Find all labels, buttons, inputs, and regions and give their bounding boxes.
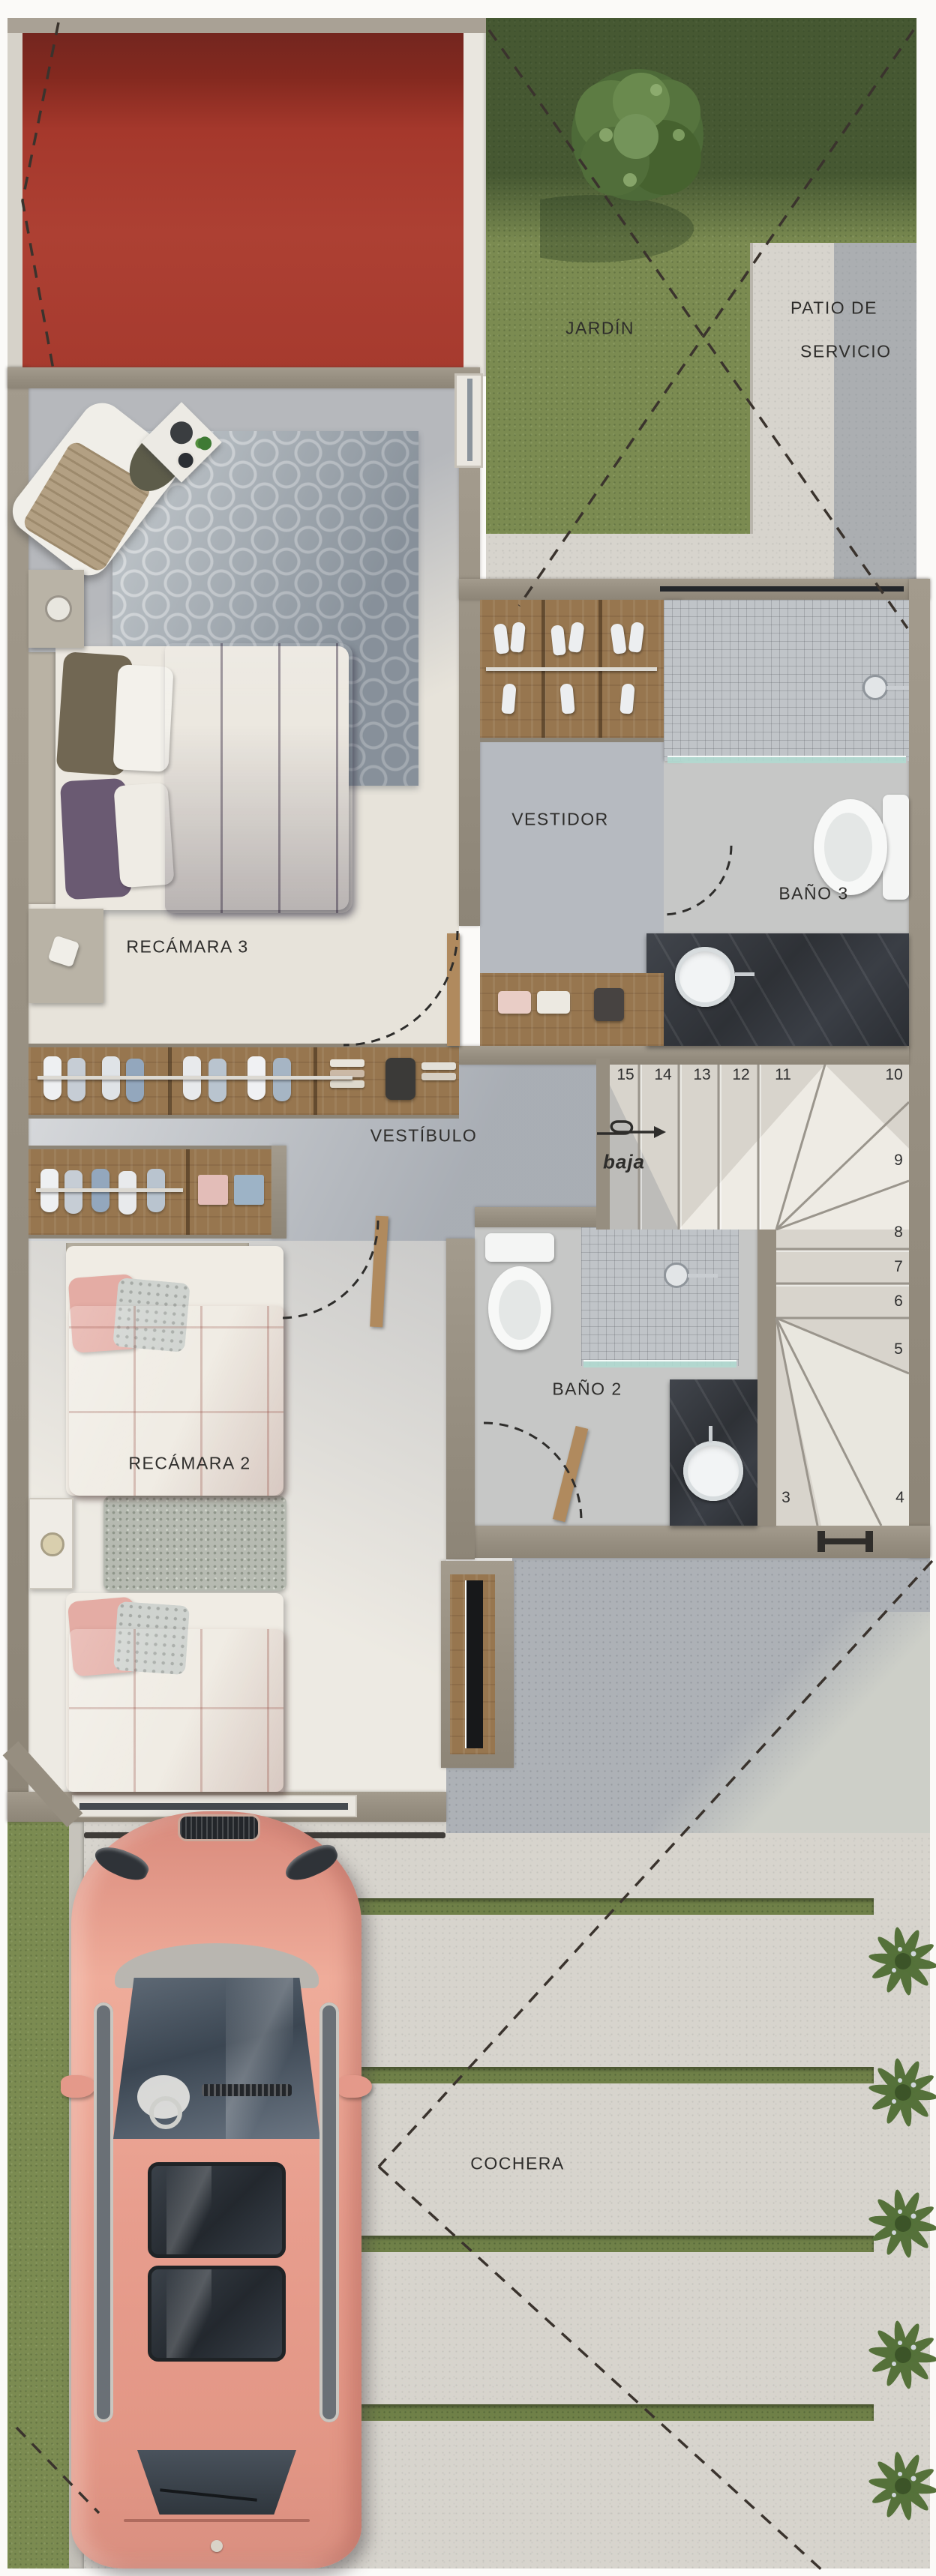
bedroom3-label: RECÁMARA 3	[126, 937, 248, 957]
shoe	[568, 622, 584, 653]
hanging-clothes	[64, 1170, 82, 1214]
vanity-bath3	[646, 933, 909, 1046]
nightstand-deco	[48, 936, 80, 968]
towel-stack	[498, 991, 531, 1014]
car-windshield	[113, 1978, 320, 2139]
toilet-tank	[485, 1233, 554, 1262]
car-side-window	[319, 2002, 339, 2422]
bath2-label: BAÑO 2	[552, 1379, 622, 1400]
stair-number: 8	[894, 1224, 903, 1242]
faucet-bath3	[735, 972, 754, 976]
wall-bedroom3-east	[459, 465, 480, 926]
shoe-shelf	[480, 600, 664, 742]
side-table-plant	[195, 434, 214, 453]
car-steering-wheel	[149, 2096, 182, 2129]
bed-double-purple	[28, 646, 349, 910]
folded-clothes	[330, 1059, 364, 1067]
bedroom3-door-leaf	[447, 933, 460, 1046]
stair-number: 13	[693, 1066, 710, 1084]
wall-bedroom2-east	[446, 1239, 475, 1559]
service-patio-label-line1: PATIO DE	[790, 298, 877, 318]
vanity-kit	[594, 988, 624, 1021]
hanging-clothes	[67, 1058, 85, 1101]
car-mirror	[61, 2075, 95, 2098]
back-patio-sunlight	[652, 1612, 930, 1833]
folded-towel	[421, 1062, 456, 1070]
car-dashboard-vent	[202, 2084, 292, 2096]
walkin-closet-label: VESTIDOR	[511, 810, 609, 830]
toilet-seat	[499, 1280, 541, 1340]
closet-bedroom3	[28, 1044, 459, 1119]
roof-top-wall	[7, 18, 486, 33]
roof-edge	[463, 18, 486, 376]
stairs-direction-label: baja	[603, 1151, 645, 1174]
shoe	[510, 622, 526, 653]
garden-label: JARDÍN	[565, 319, 634, 339]
garden-shade	[486, 18, 916, 243]
car-sunroof-rear	[148, 2266, 286, 2362]
back-door	[817, 1531, 873, 1552]
bath3-label: BAÑO 3	[778, 884, 848, 904]
garage-label: COCHERA	[470, 2154, 565, 2174]
bed-single-2	[66, 1593, 285, 1792]
side-table-plate	[166, 417, 197, 448]
nightstand	[28, 909, 103, 1003]
tv-screen	[466, 1580, 483, 1748]
rug-shaggy	[103, 1496, 286, 1591]
hanging-clothes	[118, 1171, 136, 1215]
folded-clothes	[330, 1080, 364, 1088]
car-windshield-glint	[226, 1978, 293, 2139]
shoe	[550, 625, 566, 656]
tv-niche	[441, 1561, 514, 1768]
closet-bag	[385, 1058, 415, 1100]
service-patio-edge	[750, 243, 753, 534]
car-rear-window	[137, 2450, 296, 2515]
floor-plan-scene: JARDÍN PATIO DE SERVICIO COCHERA	[0, 0, 936, 2576]
closet-rod	[37, 1076, 352, 1080]
stair-number: 14	[654, 1066, 671, 1084]
hall-label: VESTÍBULO	[370, 1126, 478, 1146]
lamp-icon	[40, 1532, 64, 1556]
car	[71, 1811, 361, 2569]
car-mirror	[337, 2075, 372, 2098]
shoe	[628, 622, 645, 653]
lamp-icon	[45, 595, 72, 622]
car-sunroof-front	[148, 2162, 286, 2258]
bed-duvet-pink	[69, 1629, 283, 1792]
shower3-glass-door	[660, 586, 904, 592]
stairs	[596, 1059, 911, 1528]
car-badge	[211, 2540, 223, 2552]
shoe	[559, 683, 574, 714]
service-patio-label: PATIO DE SERVICIO	[776, 298, 891, 363]
left-grass-strip	[7, 1822, 69, 2569]
stair-number: 3	[781, 1489, 790, 1507]
red-roof	[22, 18, 463, 376]
basin-bath3	[675, 947, 735, 1007]
back-door-panel	[817, 1538, 873, 1544]
closet-counter	[480, 973, 664, 1046]
hanging-clothes	[208, 1059, 226, 1102]
nightstand	[28, 570, 84, 648]
shoe	[619, 683, 634, 714]
closet-divider	[168, 1047, 172, 1115]
stair-number: 9	[894, 1152, 903, 1170]
stair-number: 15	[616, 1066, 634, 1084]
nightstand	[28, 1498, 73, 1589]
stair-number: 11	[775, 1066, 791, 1084]
bedroom3-window	[454, 373, 483, 468]
wall-top-bedroom3	[7, 367, 480, 388]
bed-headboard	[28, 652, 57, 904]
shelf-rail	[486, 667, 657, 671]
shower-arm	[886, 686, 909, 690]
car-trunk-line	[124, 2519, 310, 2522]
shoe	[610, 623, 626, 654]
folded-towel	[421, 1073, 456, 1080]
bedroom3-window-glass	[467, 379, 472, 461]
bedroom2-window-glass	[79, 1803, 348, 1810]
car-sunroof-glint	[166, 2166, 211, 2254]
wall-right	[909, 579, 930, 1558]
shoe	[493, 623, 510, 654]
hanging-clothes	[273, 1058, 291, 1101]
toilet-seat	[824, 813, 872, 882]
closet-rod	[36, 1188, 183, 1192]
car-grille	[178, 1814, 260, 1841]
closet-divider	[313, 1047, 317, 1115]
shower3-glass-shelf	[667, 756, 906, 763]
shower-head-icon	[862, 675, 888, 700]
stair-number: 12	[732, 1066, 749, 1084]
stair-number: 6	[894, 1292, 903, 1310]
towel-stack	[537, 991, 570, 1014]
car-sunroof-glint	[166, 2269, 211, 2358]
closet-bedroom2	[28, 1146, 271, 1239]
hanging-clothes	[126, 1059, 144, 1102]
folded-shirt-pink	[198, 1175, 228, 1205]
bedroom2-label: RECÁMARA 2	[128, 1454, 250, 1474]
closet-divider	[186, 1149, 190, 1235]
shoe	[501, 683, 516, 714]
bed-duvet-purple	[165, 643, 352, 913]
stair-number: 10	[885, 1066, 902, 1084]
stair-number: 5	[894, 1340, 903, 1358]
wall-hall-stub	[271, 1146, 286, 1239]
service-patio-label-line2: SERVICIO	[800, 342, 892, 361]
stairs-drawing	[596, 1059, 911, 1528]
folded-shirt-blue	[234, 1175, 264, 1205]
car-rear-wiper	[160, 2488, 257, 2502]
stair-number: 7	[894, 1258, 903, 1276]
service-patio-shadow	[834, 243, 916, 600]
toilet-bath2	[484, 1233, 556, 1353]
car-side-window	[94, 2002, 113, 2422]
wall-left	[7, 367, 28, 1822]
stair-number: 4	[895, 1489, 904, 1507]
back-door-jamb	[865, 1531, 873, 1552]
